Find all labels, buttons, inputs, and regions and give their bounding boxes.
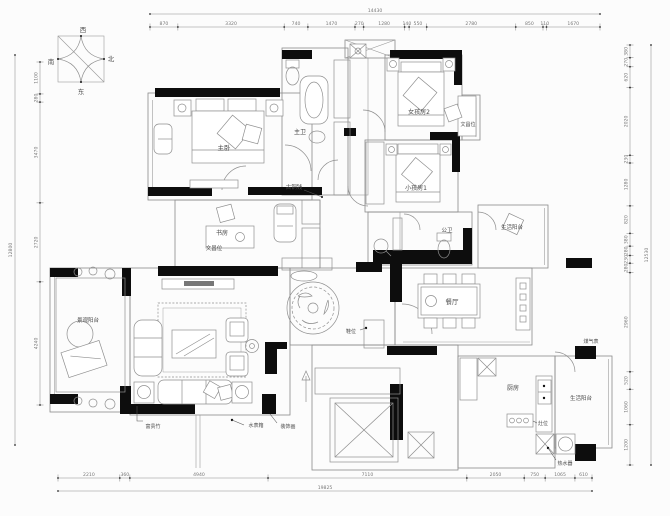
nightstand-icon — [174, 100, 191, 116]
dining-chair-icon — [443, 318, 456, 328]
svg-text:110: 110 — [540, 21, 549, 27]
dimension-line-right: 3802706202020230128082038028023028029605… — [624, 44, 634, 466]
wardrobe-icon — [366, 142, 384, 204]
bathtub-icon — [300, 76, 328, 124]
kitchen-label: 厨房 — [507, 384, 519, 392]
svg-text:360: 360 — [120, 472, 129, 478]
nightstand-icon — [387, 58, 399, 71]
svg-text:1670: 1670 — [567, 21, 579, 27]
svg-text:1060: 1060 — [624, 401, 630, 413]
bench-icon — [190, 180, 238, 188]
round-table-icon — [67, 321, 93, 347]
compass-icon: 西 北 南 东 — [48, 26, 115, 96]
svg-text:520: 520 — [624, 376, 630, 385]
svg-text:1280: 1280 — [624, 179, 630, 191]
svg-text:380: 380 — [624, 47, 630, 56]
view-balcony-label: 景观阳台 — [77, 316, 100, 324]
side-balcony: 生活阳台 — [501, 213, 524, 234]
svg-text:820: 820 — [624, 215, 630, 224]
svg-text:280: 280 — [624, 263, 630, 272]
svg-text:2020: 2020 — [624, 116, 630, 128]
master-bathroom: 主卫 — [285, 44, 366, 195]
svg-text:3470: 3470 — [34, 147, 40, 159]
svg-text:1200: 1200 — [624, 439, 630, 451]
dining-chair-icon — [443, 274, 456, 284]
desk-icon — [206, 226, 254, 248]
svg-text:270: 270 — [624, 58, 630, 67]
dining-chair-icon — [462, 274, 475, 284]
svg-text:1470: 1470 — [326, 21, 338, 27]
master-bath-label: 主卫 — [294, 128, 306, 136]
girl-wenchang-label: 文昌位 — [460, 121, 475, 128]
svg-text:280: 280 — [624, 246, 630, 255]
svg-text:750: 750 — [530, 472, 539, 478]
side-balcony-label: 生活阳台 — [501, 223, 524, 231]
dining-label: 餐厅 — [446, 297, 460, 306]
dining-chair-icon — [424, 318, 437, 328]
dimension-line-top: 8703320740147027012801405502780850110167… — [149, 21, 601, 31]
dining-room: 餐厅 — [418, 274, 530, 330]
svg-text:380: 380 — [624, 235, 630, 244]
nightstand-icon — [266, 100, 283, 116]
plant-icon — [89, 399, 97, 407]
shower-icon — [285, 145, 311, 171]
chair-icon — [216, 204, 234, 222]
armchair-icon — [226, 318, 248, 342]
decor-painting-label: 装饰画 — [280, 423, 295, 430]
dim-bottom-total: 19825 — [318, 485, 333, 491]
svg-text:2960: 2960 — [624, 316, 630, 328]
building-core — [315, 368, 434, 462]
plant-stand-icon — [134, 382, 154, 403]
kitchen-balcony-label: 生活阳台 — [570, 394, 593, 402]
sofa-icon — [134, 320, 162, 376]
stair-icon — [315, 368, 400, 394]
tv-icon — [184, 281, 214, 286]
compass-south-label: 南 — [48, 57, 55, 66]
svg-text:2720: 2720 — [34, 236, 40, 248]
plant-stand-icon — [232, 382, 252, 403]
svg-text:7110: 7110 — [362, 472, 374, 478]
water-meter-box-label: 水表箱 — [248, 422, 263, 429]
svg-text:870: 870 — [160, 21, 169, 27]
svg-text:610: 610 — [579, 472, 588, 478]
dimension-line-left: 1100280347027204240 — [33, 61, 43, 406]
floor-medallion-icon — [287, 282, 339, 334]
girl-room-2-label: 女孩房2 — [408, 108, 430, 116]
svg-text:230: 230 — [624, 155, 630, 164]
compass-west-label: 西 — [80, 26, 87, 34]
master-bedroom: 主卧 — [154, 99, 283, 188]
svg-text:2050: 2050 — [490, 472, 502, 478]
svg-text:2210: 2210 — [83, 472, 95, 478]
foyer: 鞋位 — [282, 258, 384, 402]
dining-chair-icon — [462, 318, 475, 328]
svg-text:4240: 4240 — [34, 338, 40, 350]
stove-label: 灶位 — [538, 420, 548, 427]
svg-text:280: 280 — [34, 94, 40, 103]
study-room: 书房 文昌位 古铜钱 — [206, 183, 323, 268]
shoe-cabinet-icon — [364, 320, 384, 348]
view-balcony: 景观阳台 — [56, 267, 125, 409]
svg-text:2780: 2780 — [465, 21, 477, 27]
bronze-coin-label: 古铜钱 — [286, 183, 303, 191]
svg-text:1065: 1065 — [554, 472, 566, 478]
plant-icon — [105, 399, 115, 409]
master-bedroom-label: 主卧 — [218, 143, 232, 152]
dim-right-total: 12530 — [644, 248, 650, 263]
compass-north-label: 北 — [108, 55, 115, 63]
chair-icon — [502, 213, 523, 234]
water-heater-label: 热水器 — [557, 460, 572, 467]
svg-text:4940: 4940 — [193, 472, 205, 478]
svg-text:850: 850 — [525, 21, 534, 27]
floor-plan-svg: 西 北 南 东 — [0, 0, 670, 516]
study-label: 书房 — [216, 229, 228, 237]
armchair-icon — [226, 352, 248, 376]
lucky-bamboo-label: 富贵竹 — [145, 423, 160, 430]
cabinet-icon — [302, 228, 320, 268]
kid-room-1: 小孩房1 — [366, 142, 451, 204]
svg-text:270: 270 — [355, 21, 364, 27]
dining-chair-icon — [424, 274, 437, 284]
svg-text:230: 230 — [624, 255, 630, 264]
public-bath-label: 公卫 — [441, 227, 453, 234]
shoe-spot-label: 鞋位 — [346, 328, 356, 335]
sink-icon — [309, 131, 325, 143]
svg-text:1100: 1100 — [33, 72, 39, 84]
kid-room-1-label: 小孩房1 — [405, 184, 427, 192]
svg-text:620: 620 — [624, 73, 630, 82]
counter-icon — [460, 358, 477, 400]
compass-east-label: 东 — [78, 87, 85, 96]
dimension-line-bottom: 22103604940711020507501065610 — [57, 472, 593, 482]
girl-room-2: 女孩房2 文昌位 — [387, 58, 476, 136]
svg-text:3320: 3320 — [225, 21, 237, 27]
svg-text:740: 740 — [292, 21, 301, 27]
kitchen: 厨房 灶位 — [460, 358, 552, 432]
dim-top-total: 14430 — [368, 8, 383, 14]
cabinet-icon — [302, 200, 320, 224]
svg-text:550: 550 — [414, 21, 423, 27]
svg-text:140: 140 — [402, 21, 411, 27]
study-wenchang-label: 文昌位 — [206, 244, 223, 252]
floor-plan: 西 北 南 东 — [0, 0, 670, 516]
stove-icon — [507, 414, 533, 427]
svg-text:1280: 1280 — [378, 21, 390, 27]
side-table-icon — [246, 340, 259, 353]
nightstand-icon — [443, 58, 455, 71]
nightstand-icon — [440, 144, 451, 155]
plant-icon — [105, 269, 115, 279]
nightstand-icon — [386, 144, 397, 155]
console-table-icon — [291, 271, 317, 281]
dim-left-total: 12800 — [8, 243, 14, 258]
gas-meter-label: 煤气表 — [583, 338, 598, 345]
